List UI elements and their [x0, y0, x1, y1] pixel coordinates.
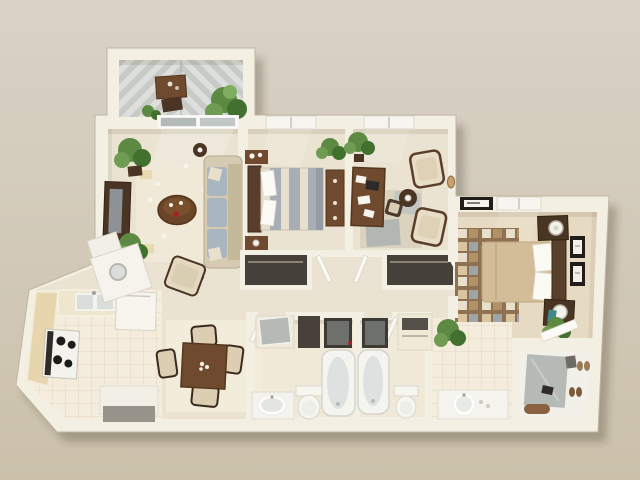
stove	[42, 329, 79, 379]
master-wall-art	[460, 197, 493, 210]
dining-table	[181, 343, 227, 389]
floorplan-image	[0, 0, 640, 480]
framed-picture-2	[570, 262, 585, 286]
floorplan-canvas	[0, 0, 640, 480]
sink-vanity-A	[252, 392, 294, 419]
bathA-dark-door	[298, 316, 320, 348]
bathtub-B	[358, 350, 389, 414]
master-nightstand-top	[538, 215, 569, 240]
closet-bedroom1	[240, 250, 312, 290]
sofa	[204, 156, 242, 268]
framed-picture-1	[570, 236, 585, 258]
dining-chair-left	[156, 349, 178, 378]
closet-bedroom2	[382, 250, 458, 290]
toilet-A	[296, 386, 322, 419]
office-side-table	[399, 189, 417, 207]
bed1-dresser	[326, 170, 344, 226]
wall-oval-art	[448, 176, 455, 188]
coffee-table	[158, 196, 196, 225]
bed1-nightstand-bottom	[245, 236, 268, 250]
tv-console	[103, 182, 131, 241]
bed1-nightstand-top	[245, 150, 268, 164]
armchair-1	[409, 150, 444, 189]
armchair-2	[411, 207, 447, 246]
master-vanity	[438, 390, 508, 419]
master-left-wall-low	[448, 296, 458, 318]
bathA-closet	[256, 316, 294, 348]
desk	[351, 167, 385, 226]
peninsula-counter	[100, 386, 158, 422]
toilet-B	[394, 386, 418, 418]
closet-mirror	[522, 353, 570, 410]
master-left-wall	[448, 212, 458, 262]
side-table-top	[193, 143, 207, 157]
master-bed	[482, 240, 566, 302]
bed1	[248, 166, 323, 232]
linen-closet	[398, 314, 432, 350]
bathtub-A	[322, 350, 355, 416]
closet-bag	[524, 404, 550, 414]
